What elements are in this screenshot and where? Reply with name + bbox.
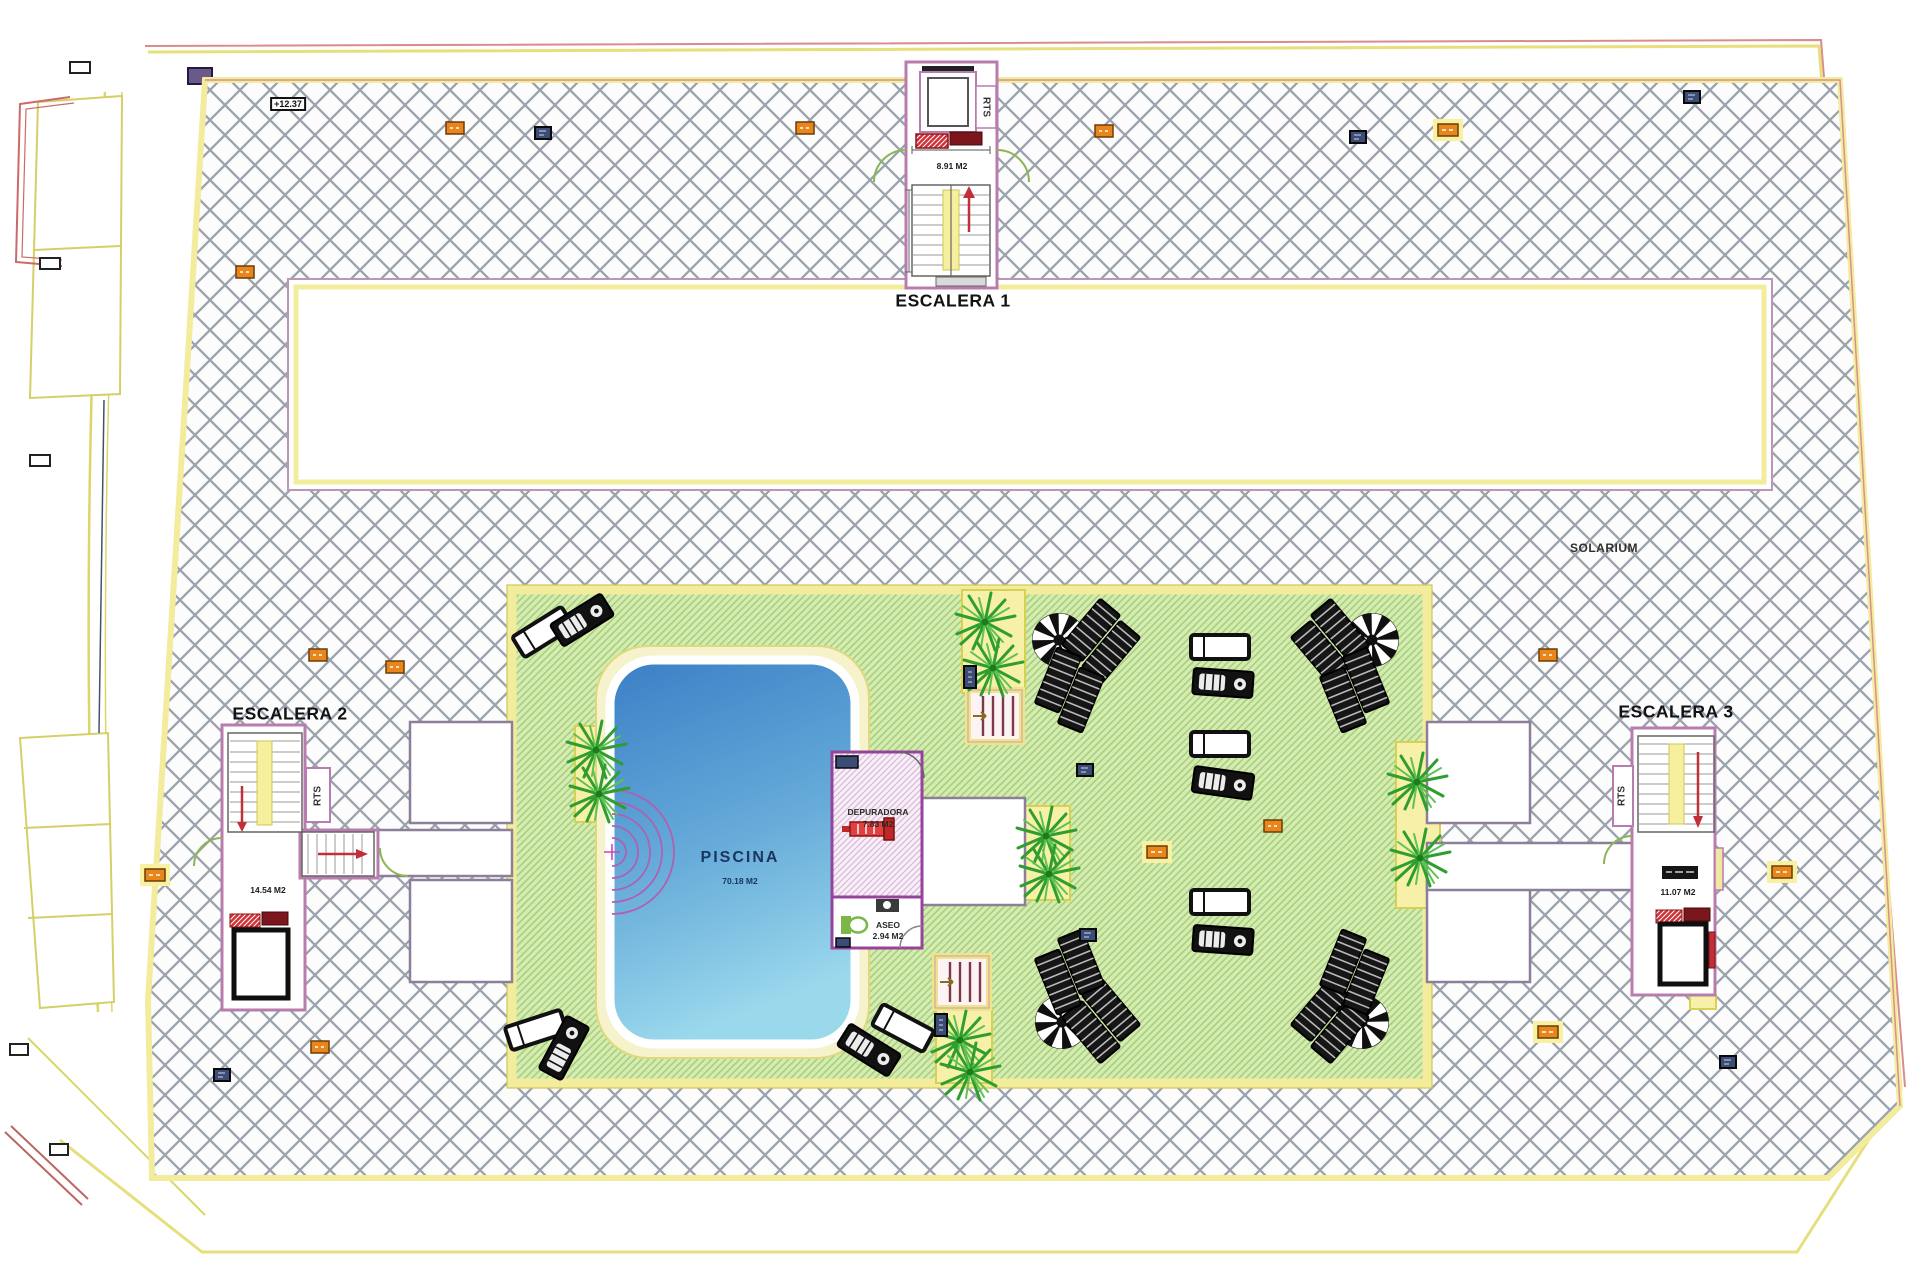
floor-plan-canvas bbox=[0, 0, 1920, 1280]
escalera-2-rts-label: RTS bbox=[313, 786, 324, 806]
sun-lounger-icon bbox=[1191, 890, 1249, 914]
orange-marker bbox=[236, 266, 254, 278]
escalera-2-label: ESCALERA 2 bbox=[232, 704, 347, 725]
deck-stairs-icon bbox=[968, 690, 1022, 742]
escalera-1-area: 8.91 M2 bbox=[937, 161, 968, 171]
escalera-1-label: ESCALERA 1 bbox=[895, 291, 1010, 312]
door-marker bbox=[214, 1069, 230, 1081]
pool-label: PISCINA bbox=[701, 849, 780, 867]
orange-marker-highlighted bbox=[1142, 841, 1172, 863]
aseo-area: 2.94 M2 bbox=[873, 931, 904, 941]
sun-lounger-icon bbox=[1191, 635, 1249, 659]
escalera-2-area: 14.54 M2 bbox=[250, 885, 285, 895]
door-marker bbox=[1077, 764, 1093, 776]
orange-marker bbox=[1095, 125, 1113, 137]
upper-roof-band bbox=[288, 279, 1772, 490]
orange-marker bbox=[309, 649, 327, 661]
orange-marker-highlighted bbox=[1767, 861, 1797, 883]
occupied-lounger-icon bbox=[1192, 668, 1254, 698]
escalera-1-rts-label: RTS bbox=[981, 97, 992, 117]
aseo-label: ASEO bbox=[876, 920, 900, 930]
orange-marker bbox=[446, 122, 464, 134]
door-marker bbox=[1720, 1056, 1736, 1068]
orange-marker bbox=[386, 661, 404, 673]
orange-marker bbox=[1539, 649, 1557, 661]
pool-area: 70.18 M2 bbox=[722, 876, 757, 886]
orange-marker bbox=[1264, 820, 1282, 832]
door-marker bbox=[535, 127, 551, 139]
orange-marker-highlighted bbox=[1433, 119, 1463, 141]
escalera-3-rts-label: RTS bbox=[1617, 786, 1628, 806]
floor-plan-page: ESCALERA 1 8.91 M2 RTS ESCALERA 2 14.54 … bbox=[0, 0, 1920, 1280]
door-marker bbox=[1080, 929, 1096, 941]
occupied-lounger-icon bbox=[1192, 925, 1254, 955]
door-marker bbox=[964, 666, 976, 688]
toilet-icon bbox=[841, 916, 867, 934]
sink-icon bbox=[876, 899, 899, 912]
orange-marker-highlighted bbox=[1533, 1021, 1563, 1043]
escalera-3-label: ESCALERA 3 bbox=[1618, 702, 1733, 723]
escalera-3-area: 11.07 M2 bbox=[1661, 887, 1696, 897]
depuradora-area: 7.83 M2 bbox=[863, 819, 894, 829]
orange-marker bbox=[796, 122, 814, 134]
door-marker bbox=[935, 1014, 947, 1036]
solarium-label: SOLARIUM bbox=[1570, 541, 1638, 555]
door-marker bbox=[1350, 131, 1366, 143]
depuradora-label: DEPURADORA bbox=[848, 807, 909, 817]
deck-stairs-icon bbox=[935, 956, 989, 1008]
door-marker bbox=[1684, 91, 1700, 103]
orange-marker bbox=[311, 1041, 329, 1053]
level-marker: +12.37 bbox=[270, 97, 306, 111]
sun-lounger-icon bbox=[1191, 732, 1249, 756]
orange-marker-highlighted bbox=[140, 864, 170, 886]
